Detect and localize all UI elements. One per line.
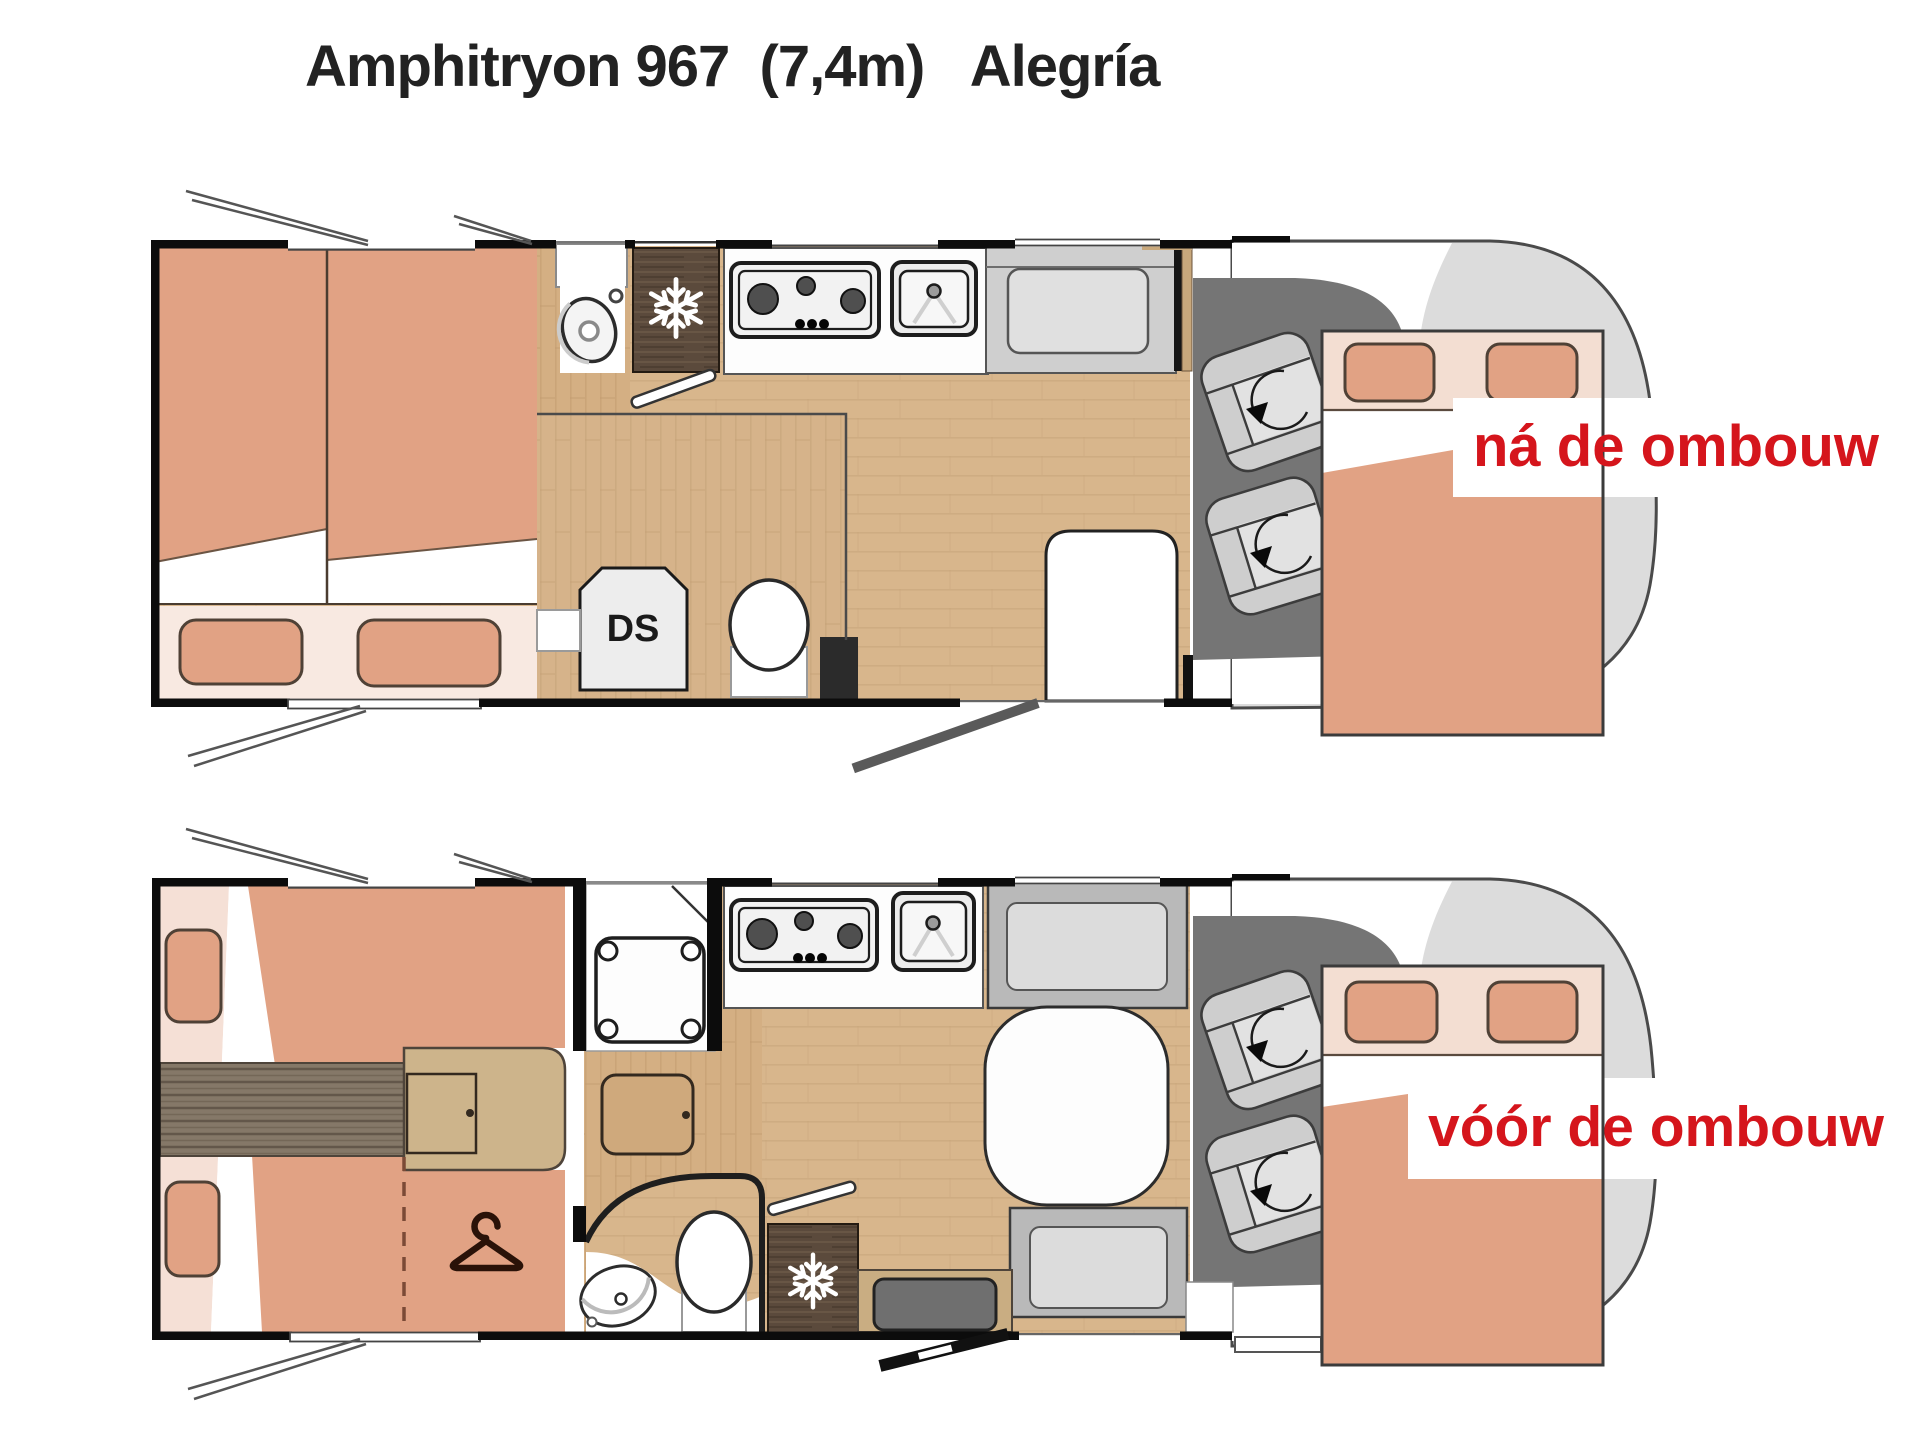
svg-text:ná de ombouw: ná de ombouw [1473, 414, 1880, 479]
svg-text:DS: DS [607, 608, 660, 650]
svg-text:Amphitryon 967 (7,4m) Alegr: Amphitryon 967 (7,4m) Alegría [305, 34, 1161, 99]
svg-text:vóór de ombouw: vóór de ombouw [1428, 1095, 1885, 1159]
